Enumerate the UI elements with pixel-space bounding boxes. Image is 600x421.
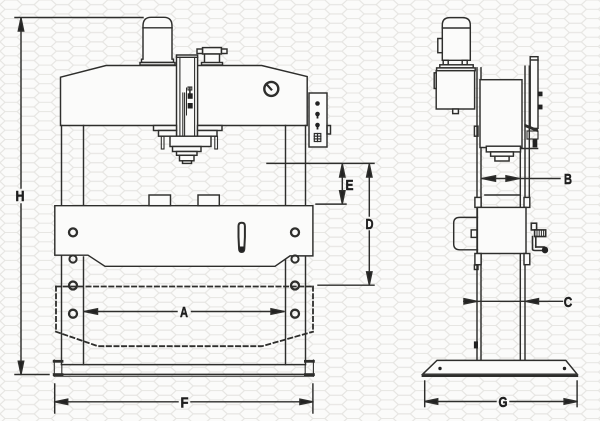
svg-text:E: E [346, 177, 354, 194]
svg-text:C: C [564, 294, 573, 311]
svg-text:D: D [366, 216, 374, 233]
svg-text:H: H [16, 188, 25, 205]
svg-text:A: A [180, 304, 188, 321]
svg-text:F: F [181, 394, 189, 411]
svg-text:B: B [564, 171, 572, 188]
svg-text:G: G [499, 394, 508, 411]
